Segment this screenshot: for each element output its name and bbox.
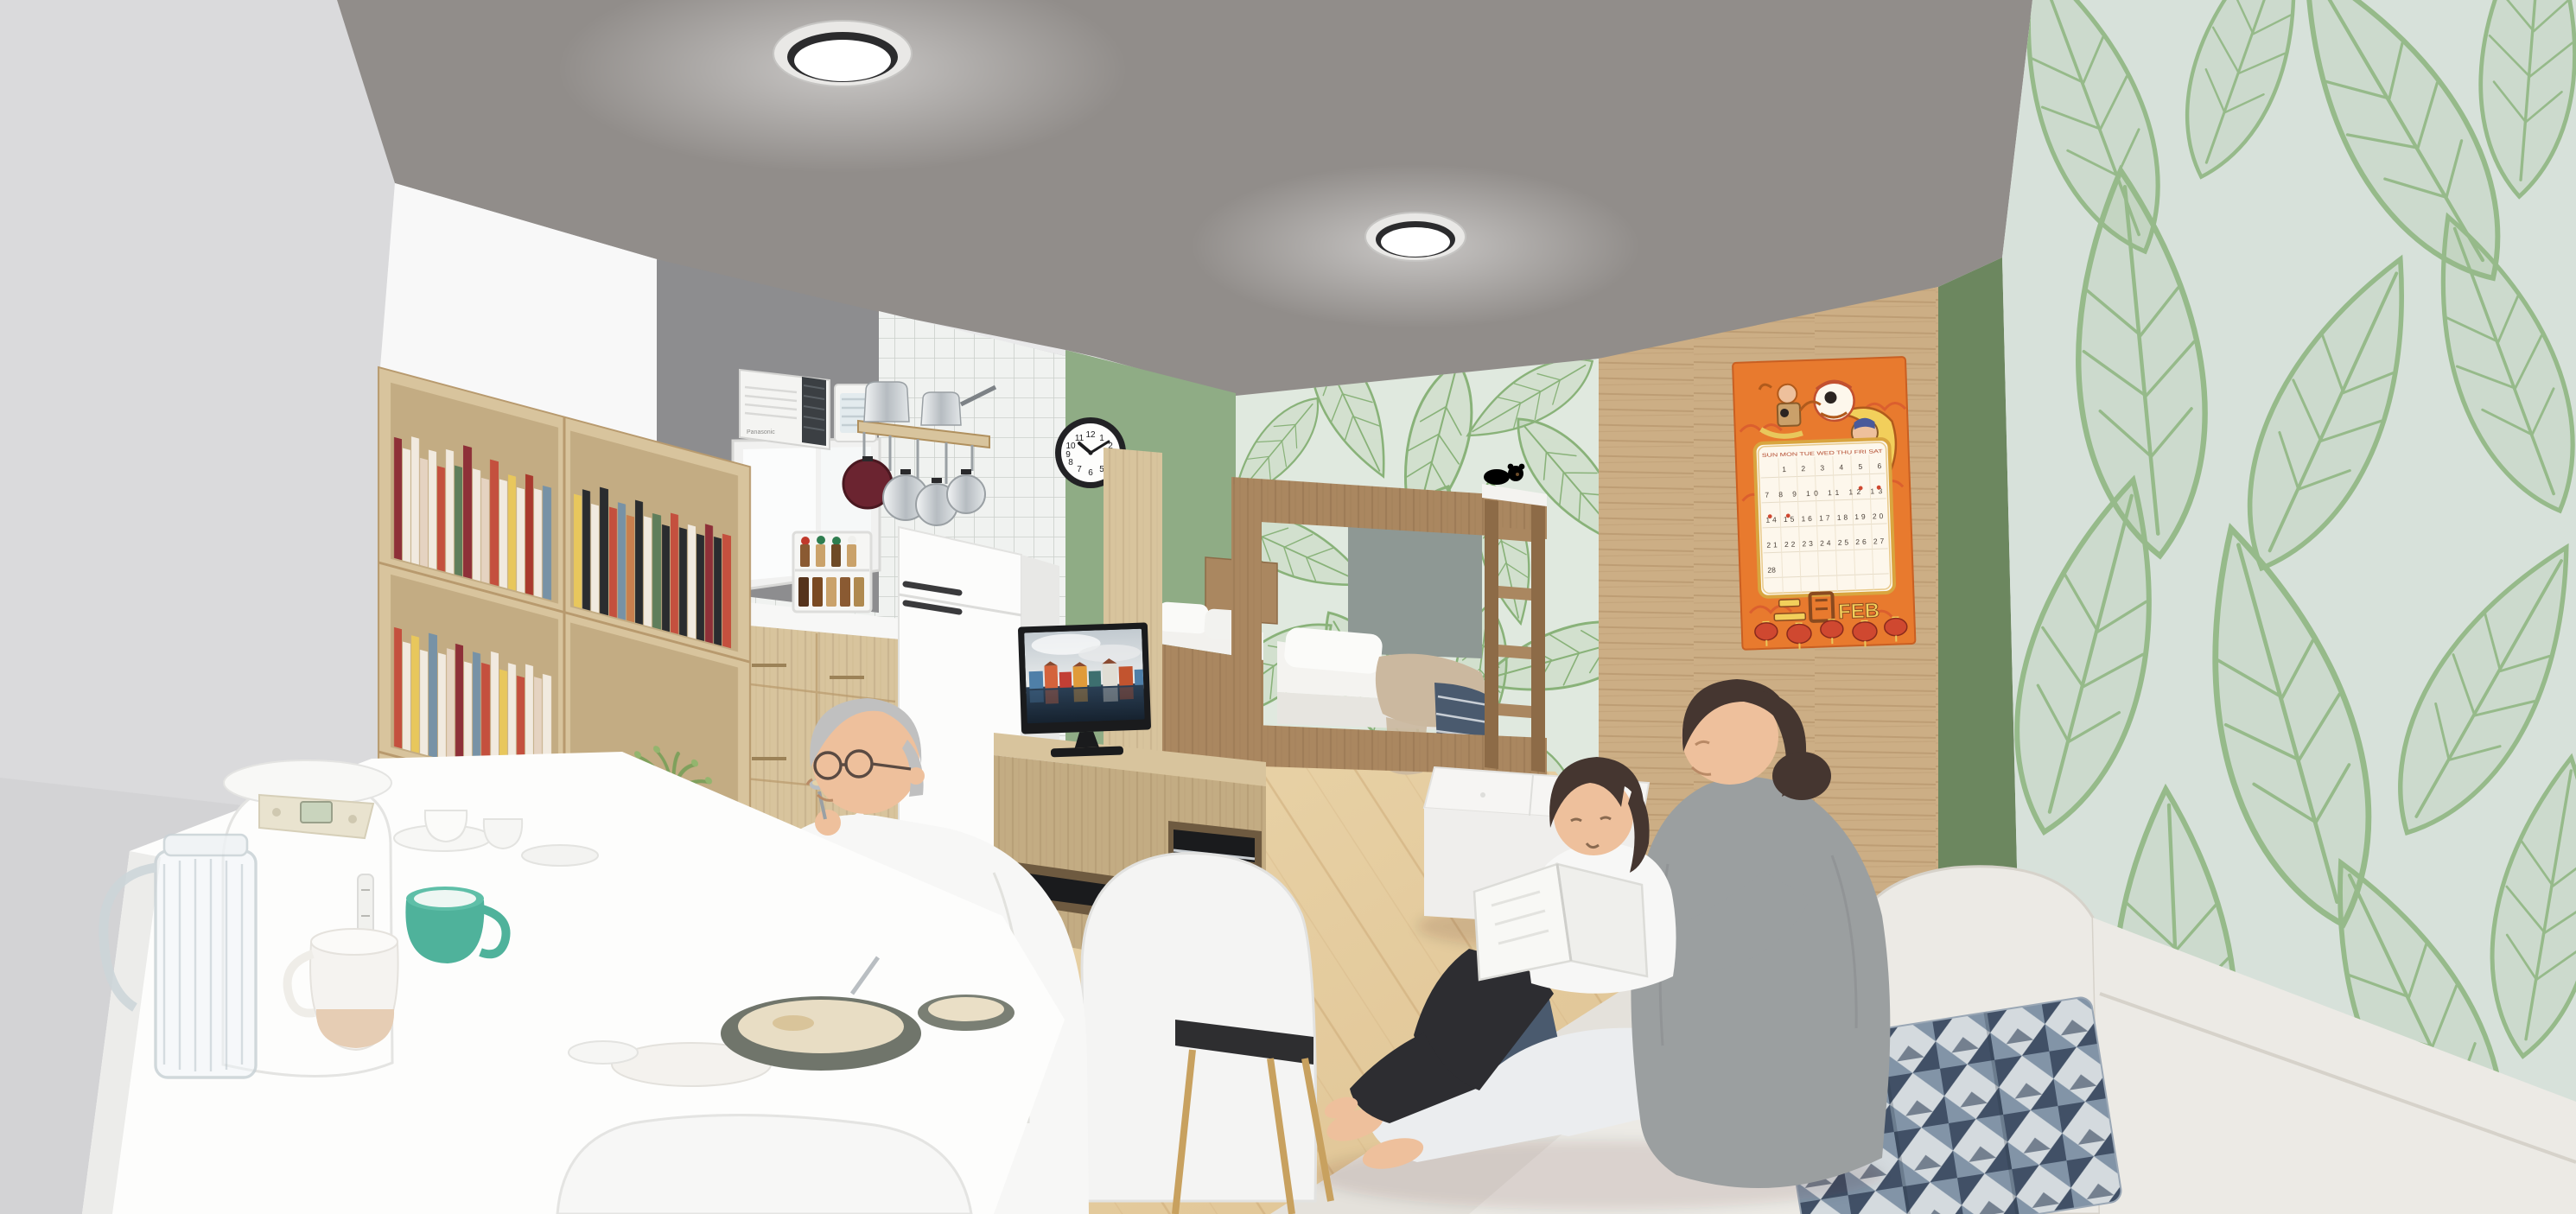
- ceiling-light-2: [1365, 213, 1466, 261]
- fry-pan-3: [947, 475, 985, 513]
- bed-pillow: [1283, 626, 1383, 675]
- small-bowl: [918, 995, 1014, 1031]
- svg-text:12: 12: [1085, 430, 1096, 440]
- poster-calendar-grid: SUN MON TUE WED THU FRI SAT 1 2 3 4 5 6 …: [1754, 439, 1894, 597]
- calendar-month-en: FEB: [1838, 599, 1880, 624]
- small-dish: [569, 1041, 638, 1064]
- spice-rack: [793, 532, 871, 612]
- svg-text:9: 9: [1065, 450, 1071, 460]
- ceiling-light-1: [773, 21, 912, 86]
- svg-text:1: 1: [1099, 434, 1104, 443]
- clock-center: [1088, 450, 1092, 454]
- sauce-pot: [921, 392, 961, 425]
- thermo-pot-lcd: [301, 802, 332, 823]
- grandpa-chair: [1082, 854, 1331, 1214]
- scene-canvas: Panasonic 12 1 2 3 4 5 6 7 8 9 10 11: [0, 0, 2576, 1214]
- calendar-poster: SUN MON TUE WED THU FRI SAT 1 2 3 4 5 6 …: [1733, 357, 1916, 651]
- svg-text:6: 6: [1088, 468, 1093, 478]
- mother-hair-bun: [1772, 752, 1831, 800]
- saucer-2: [522, 845, 598, 866]
- svg-text:28: 28: [1767, 565, 1776, 574]
- svg-text:7: 7: [1077, 465, 1082, 474]
- ac-brand-label: Panasonic: [747, 429, 775, 435]
- window-ac-unit: Panasonic: [740, 370, 830, 449]
- interior-rendering: 二月: [0, 0, 2576, 1214]
- grandpa-hand: [815, 810, 841, 836]
- stock-pot: [864, 382, 909, 422]
- tv-screen: [1024, 629, 1145, 724]
